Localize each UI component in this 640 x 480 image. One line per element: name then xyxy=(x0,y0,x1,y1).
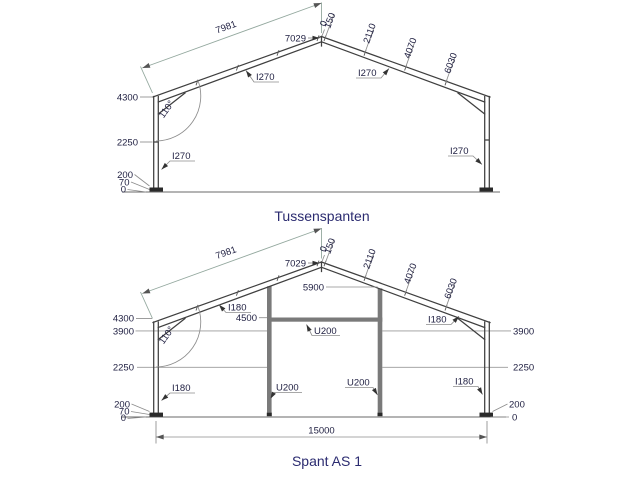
dim-7029: 7029 xyxy=(285,34,306,45)
dim-7981: 7981 xyxy=(214,244,238,262)
elevation-labels-left: 4300 2250 200 70 0 xyxy=(117,93,153,196)
profile-rafter-right: I180 xyxy=(428,315,447,326)
elevation-labels-left: 4300 3900 2250 200 70 0 xyxy=(113,314,152,425)
dim-4500: 4500 xyxy=(236,313,257,324)
dim-150: 150 xyxy=(322,11,338,30)
base-plate-right xyxy=(480,188,494,192)
drawing-title-tussenspanten: Tussenspanten xyxy=(274,208,369,224)
dim-2110: 2110 xyxy=(361,22,378,45)
eave-haunch-right xyxy=(458,93,485,114)
base-plate-right xyxy=(480,413,494,417)
profile-labels: I180 I180 I180 I180 U200 U200 U200 xyxy=(162,303,483,401)
elevation-labels-right: 3900 2250 200 0 xyxy=(491,327,535,424)
dim-7029: 7029 xyxy=(285,259,306,270)
eave-haunch-right xyxy=(458,319,485,340)
rafter-left xyxy=(153,262,322,340)
header-beam xyxy=(267,318,382,322)
level-0: 0 xyxy=(121,413,126,424)
level-2250: 2250 xyxy=(113,363,134,374)
inner-structure xyxy=(267,286,383,416)
purlin-dimensions: 0 150 2110 4070 6030 xyxy=(318,237,460,307)
profile-column-right: I270 xyxy=(450,146,469,157)
drawing-title-spant-as1: Spant AS 1 xyxy=(292,453,362,469)
technical-drawing: 7981 7029 0 150 2110 4070 6030 I270 I270… xyxy=(0,0,640,480)
dim-4070: 4070 xyxy=(402,36,420,60)
dim-4070: 4070 xyxy=(402,262,420,286)
dim-7981: 7981 xyxy=(214,19,238,37)
level-2250: 2250 xyxy=(513,363,534,374)
level-2250: 2250 xyxy=(117,138,138,149)
cad-drawing-sheet: 7981 7029 0 150 2110 4070 6030 I270 I270… xyxy=(0,0,640,480)
dim-5900: 5900 xyxy=(303,283,324,294)
dim-slope-length: 7981 xyxy=(141,3,322,94)
dim-150: 150 xyxy=(322,237,338,256)
profile-rafter-right: I270 xyxy=(358,68,377,79)
rafter-left xyxy=(153,37,322,115)
level-4300: 4300 xyxy=(117,93,138,104)
base-plate-left xyxy=(150,413,164,417)
profile-inner-column-left: U200 xyxy=(276,383,299,394)
level-0: 0 xyxy=(512,413,517,424)
tussenspanten-frame: 7981 7029 0 150 2110 4070 6030 I270 I270… xyxy=(117,3,500,225)
profile-rafter-left: I180 xyxy=(228,303,247,314)
dim-6030: 6030 xyxy=(442,277,460,301)
base-plate-left xyxy=(150,188,164,192)
profile-column-left: I180 xyxy=(172,383,191,394)
eave-angle: 110° xyxy=(156,307,201,368)
level-0: 0 xyxy=(121,185,126,196)
profile-rafter-left: I270 xyxy=(256,72,275,83)
dim-6030: 6030 xyxy=(442,51,460,75)
inner-column-right xyxy=(378,288,383,412)
dim-15000: 15000 xyxy=(308,426,334,437)
inner-column-left xyxy=(267,286,272,412)
level-4300: 4300 xyxy=(113,314,134,325)
level-3900: 3900 xyxy=(513,327,534,338)
level-3900: 3900 xyxy=(113,327,134,338)
spant-as1-frame: 7981 7029 0 150 2110 4070 6030 5900 4500 xyxy=(113,228,534,469)
profile-column-left: I270 xyxy=(172,151,191,162)
dim-span: 15000 xyxy=(156,421,487,444)
profile-column-right: I180 xyxy=(455,377,474,388)
level-200: 200 xyxy=(509,400,525,411)
profile-inner-column-right: U200 xyxy=(347,378,370,389)
eave-angle: 110° xyxy=(156,81,201,142)
dim-2110: 2110 xyxy=(361,248,378,271)
purlin-dimensions: 0 150 2110 4070 6030 xyxy=(318,11,460,82)
